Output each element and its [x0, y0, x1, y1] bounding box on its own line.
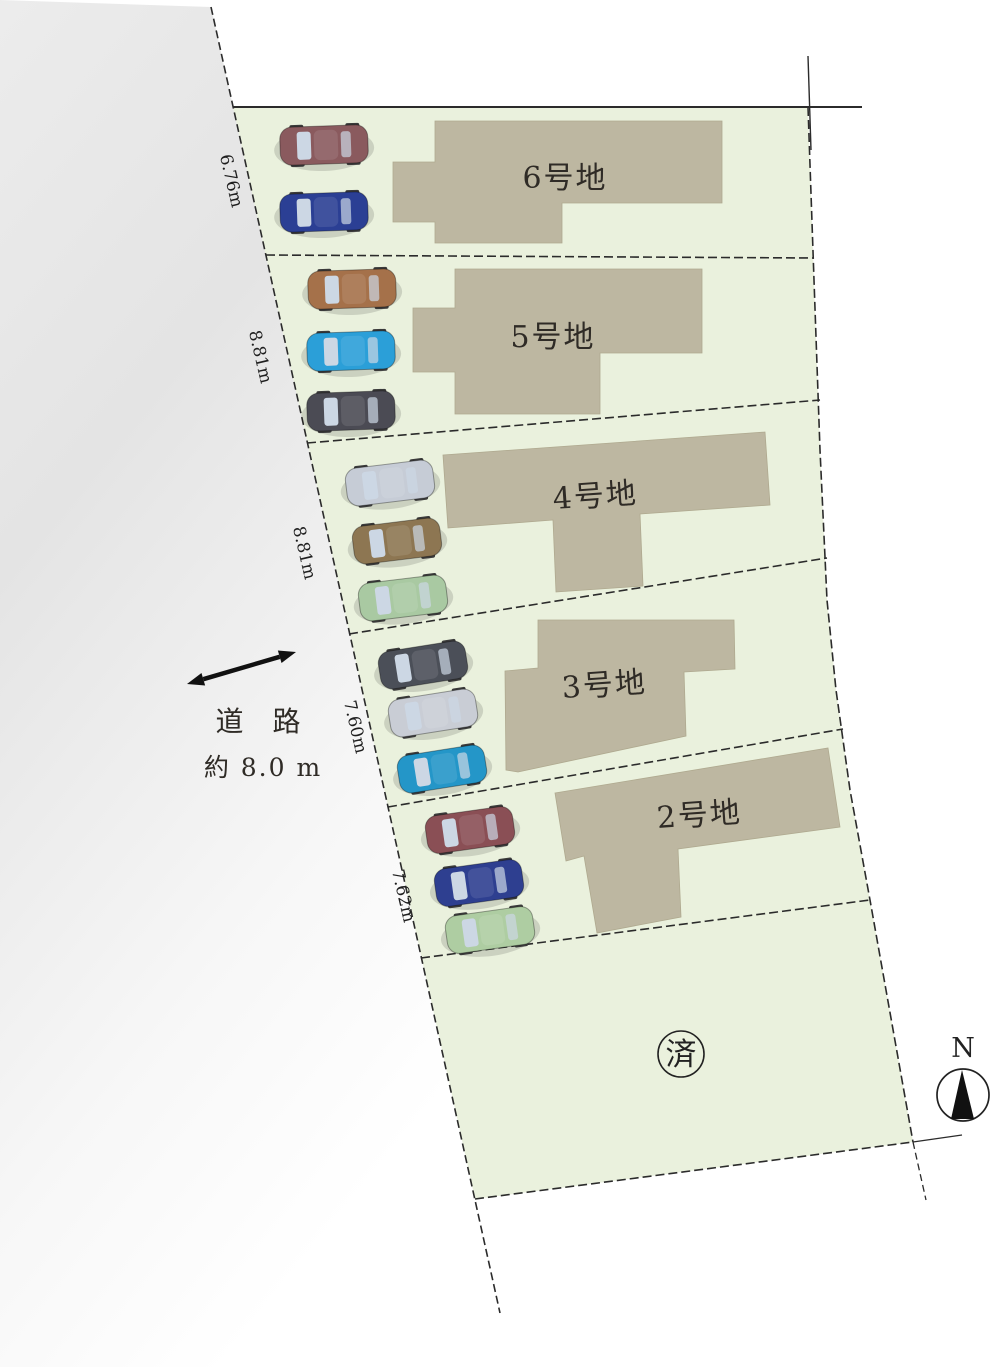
- car-roof: [385, 524, 412, 557]
- boundary-extension: [913, 1142, 926, 1200]
- car-windshield: [324, 397, 339, 425]
- lot-label: 4号地: [552, 476, 639, 517]
- car-roof: [421, 696, 449, 729]
- lot-label: 2号地: [656, 795, 743, 836]
- car-roof: [467, 866, 495, 899]
- car-roof: [313, 130, 338, 161]
- lot-label: 5号地: [510, 320, 595, 355]
- car-roof: [378, 466, 405, 499]
- lot-label: 3号地: [561, 665, 648, 706]
- boundary-extension: [913, 1135, 962, 1142]
- car-roof: [430, 752, 458, 785]
- car-rear-window: [368, 397, 379, 423]
- car-roof: [340, 396, 365, 427]
- car-roof: [313, 197, 338, 228]
- car-windshield: [325, 275, 340, 303]
- car-roof: [340, 336, 365, 367]
- car-rear-window: [341, 131, 352, 157]
- car-roof: [341, 274, 366, 305]
- car-windshield: [324, 337, 339, 365]
- car-windshield: [297, 198, 312, 226]
- car-roof: [458, 813, 486, 846]
- car-rear-window: [368, 337, 379, 363]
- car-roof: [411, 648, 439, 681]
- subdivision-plan-drawing: 6号地5号地4号地3号地2号地6.76m8.81m8.81m7.60m7.62m…: [0, 0, 1000, 1367]
- car-rear-window: [341, 198, 352, 224]
- sold-mark-text: 済: [666, 1037, 697, 1073]
- road-width-label: 約 8.0 m: [204, 753, 322, 782]
- site-plan-page: 6号地5号地4号地3号地2号地6.76m8.81m8.81m7.60m7.62m…: [0, 0, 1000, 1367]
- car-rear-window: [369, 275, 380, 301]
- car-roof: [391, 581, 418, 614]
- car-windshield: [297, 131, 312, 159]
- car-roof: [478, 913, 506, 946]
- road-label: 道 路: [216, 705, 311, 738]
- north-label: N: [951, 1033, 975, 1064]
- lot-label: 6号地: [522, 161, 607, 196]
- north-compass: N: [937, 1033, 989, 1121]
